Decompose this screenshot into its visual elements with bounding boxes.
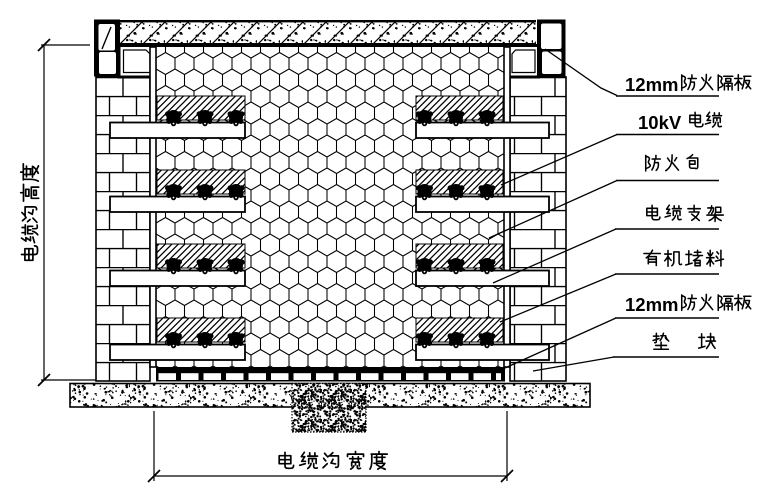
svg-text:10kV: 10kV	[638, 112, 682, 133]
svg-text:12mm: 12mm	[625, 294, 678, 315]
svg-text:12mm: 12mm	[625, 74, 678, 95]
